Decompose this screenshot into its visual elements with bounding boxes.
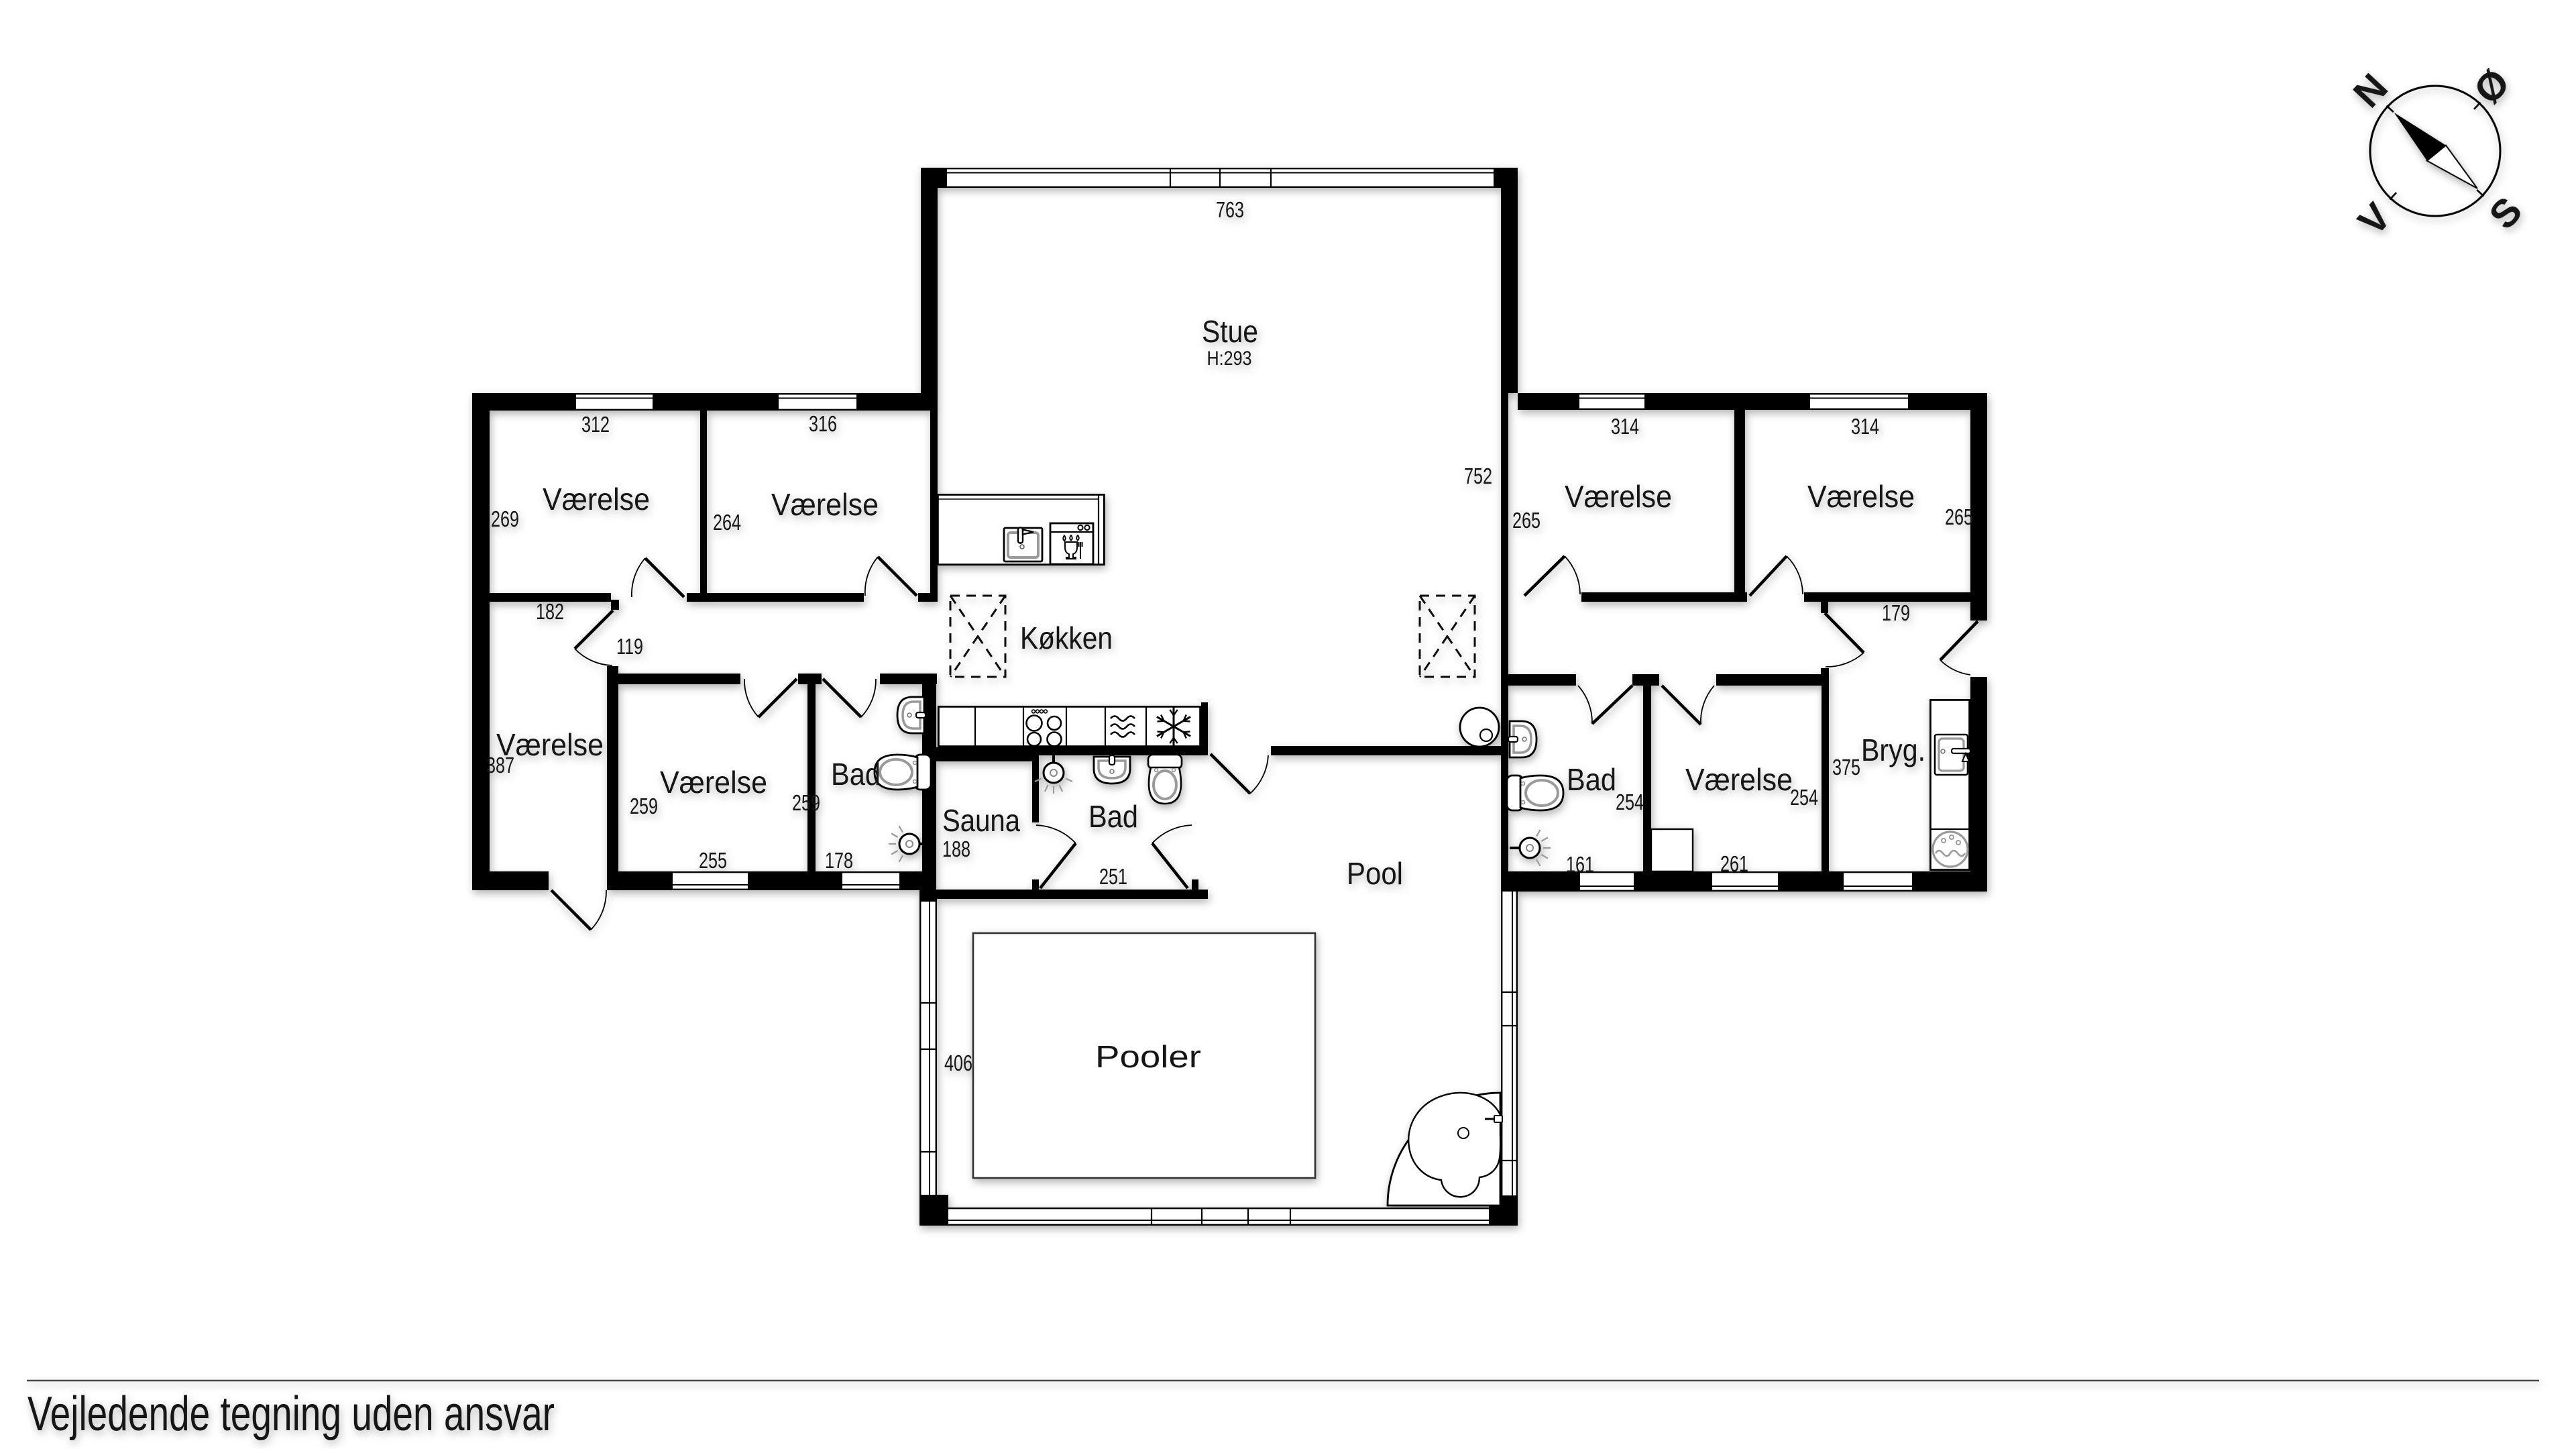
svg-text:Værelse: Værelse: [660, 765, 767, 800]
svg-text:H:293: H:293: [1207, 347, 1252, 370]
svg-text:254: 254: [1790, 785, 1818, 810]
svg-text:375: 375: [1832, 755, 1860, 780]
svg-text:188: 188: [942, 837, 970, 861]
svg-text:Pooler: Pooler: [1095, 1039, 1201, 1074]
svg-text:316: 316: [809, 411, 837, 436]
svg-text:Værelse: Værelse: [771, 487, 879, 522]
svg-text:406: 406: [944, 1051, 972, 1075]
svg-text:312: 312: [581, 412, 610, 437]
svg-text:Bryg.: Bryg.: [1861, 733, 1925, 767]
svg-text:Køkken: Køkken: [1020, 621, 1113, 655]
svg-text:387: 387: [486, 753, 514, 777]
svg-text:Sauna: Sauna: [942, 803, 1020, 838]
svg-text:752: 752: [1464, 464, 1492, 488]
svg-text:251: 251: [1099, 864, 1127, 889]
svg-text:161: 161: [1566, 852, 1594, 877]
svg-text:Vejledende tegning uden ansvar: Vejledende tegning uden ansvar: [27, 1387, 555, 1441]
svg-text:259: 259: [630, 794, 658, 818]
svg-text:254: 254: [1616, 790, 1644, 814]
svg-text:265: 265: [1512, 508, 1541, 533]
svg-text:Værelse: Værelse: [1565, 479, 1672, 514]
svg-text:259: 259: [792, 790, 820, 815]
svg-text:314: 314: [1851, 414, 1879, 439]
svg-text:182: 182: [536, 599, 564, 624]
svg-text:Værelse: Værelse: [1807, 479, 1915, 514]
svg-text:763: 763: [1216, 197, 1244, 222]
svg-text:119: 119: [616, 634, 643, 659]
svg-text:Værelse: Værelse: [1685, 762, 1793, 797]
svg-text:Bad: Bad: [831, 757, 881, 792]
svg-text:Pool: Pool: [1347, 856, 1403, 891]
svg-text:Stue: Stue: [1202, 314, 1258, 349]
svg-text:Bad: Bad: [1567, 762, 1616, 797]
svg-text:Værelse: Værelse: [543, 482, 650, 517]
svg-text:179: 179: [1882, 600, 1910, 625]
svg-text:Bad: Bad: [1088, 799, 1138, 834]
svg-text:314: 314: [1611, 414, 1639, 439]
svg-text:261: 261: [1720, 851, 1748, 876]
svg-text:264: 264: [713, 510, 741, 535]
svg-text:178: 178: [825, 848, 853, 873]
svg-text:255: 255: [699, 848, 727, 873]
svg-text:269: 269: [491, 506, 519, 531]
svg-text:265: 265: [1945, 504, 1973, 529]
